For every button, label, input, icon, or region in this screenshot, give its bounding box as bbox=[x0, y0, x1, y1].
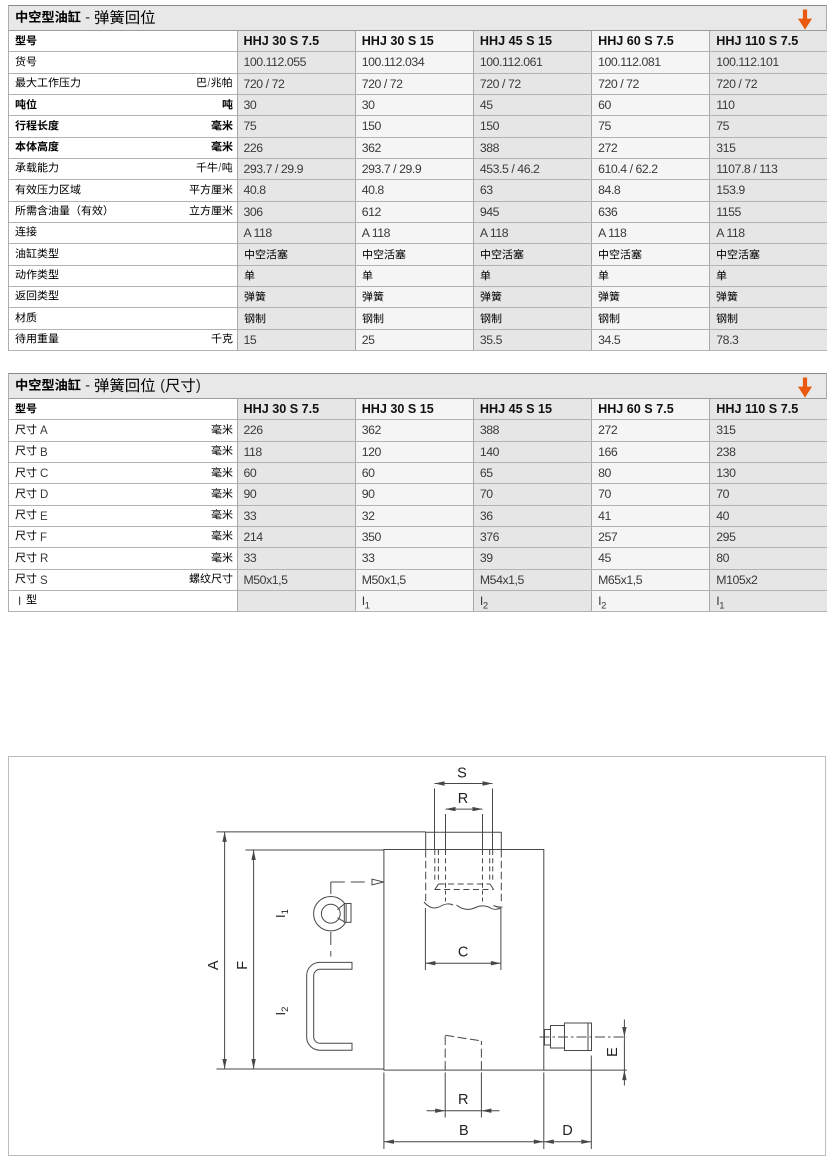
svg-text:I2: I2 bbox=[273, 1007, 291, 1016]
svg-text:D: D bbox=[562, 1123, 572, 1139]
svg-text:C: C bbox=[458, 945, 468, 961]
svg-text:R: R bbox=[458, 791, 468, 807]
svg-text:F: F bbox=[235, 961, 251, 970]
svg-text:E: E bbox=[605, 1047, 621, 1057]
svg-text:S: S bbox=[457, 766, 467, 782]
svg-text:A: A bbox=[206, 960, 222, 970]
svg-text:R: R bbox=[458, 1092, 468, 1108]
svg-text:B: B bbox=[459, 1123, 469, 1139]
svg-text:I1: I1 bbox=[273, 909, 291, 918]
